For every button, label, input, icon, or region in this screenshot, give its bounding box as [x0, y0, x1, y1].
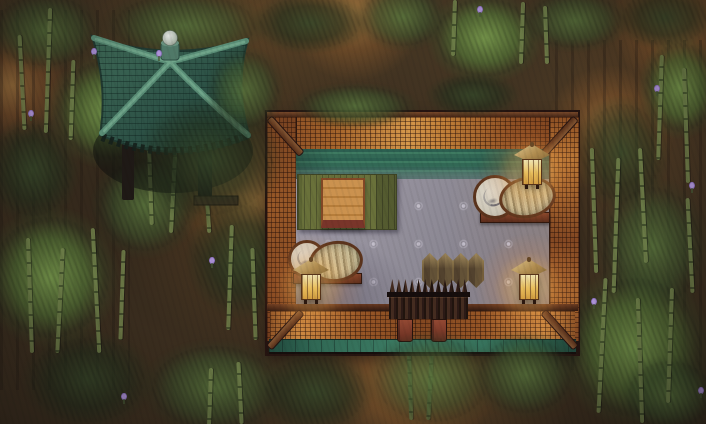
purple-flower	[590, 298, 598, 309]
purple-flower	[476, 6, 484, 17]
purple-flower	[120, 393, 128, 404]
purple-flower	[653, 85, 661, 96]
purple-flower	[697, 387, 705, 398]
purple-flower	[155, 50, 163, 61]
game-map-canvas[interactable]	[0, 0, 706, 424]
purple-flower	[27, 110, 35, 121]
flower-layer	[0, 0, 706, 424]
purple-flower	[90, 48, 98, 59]
purple-flower	[208, 257, 216, 268]
purple-flower	[688, 182, 696, 193]
